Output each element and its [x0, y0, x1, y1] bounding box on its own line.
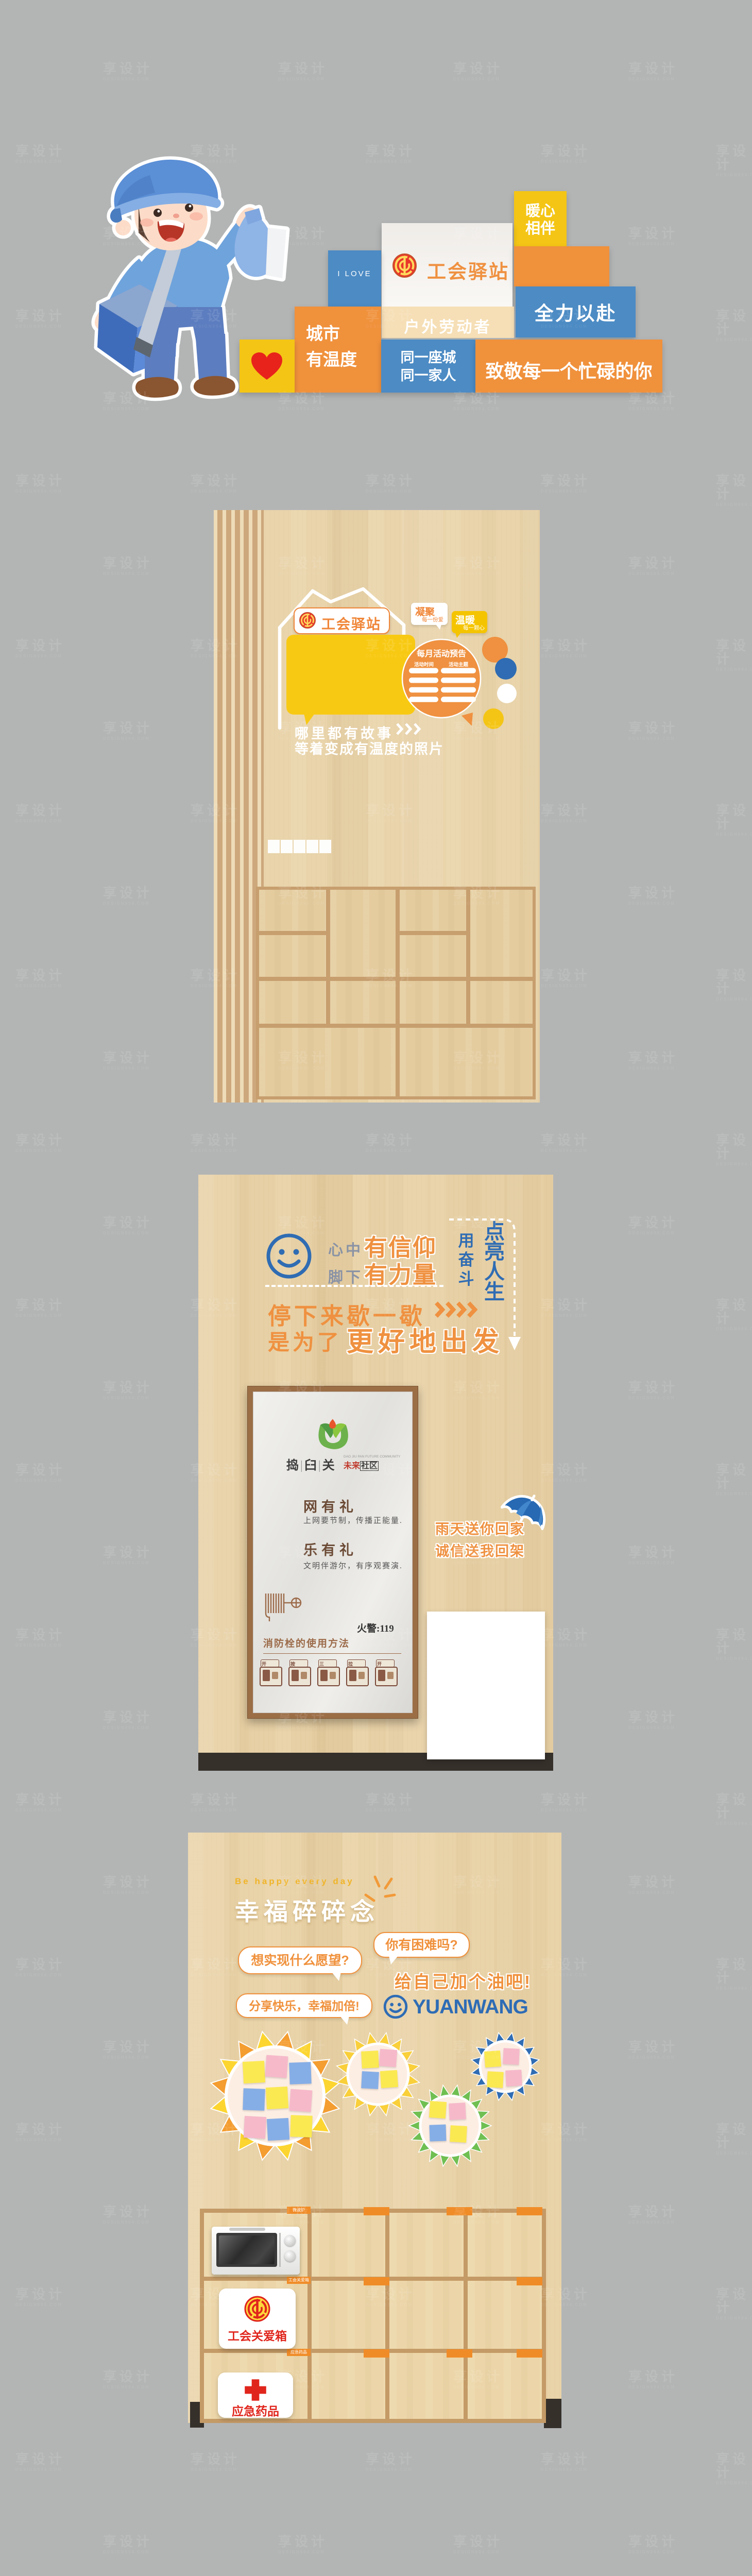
svg-text:活动主题: 活动主题: [449, 662, 469, 668]
svg-text:每月活动预告: 每月活动预告: [417, 649, 466, 658]
svg-text:活动时间: 活动时间: [414, 662, 434, 668]
